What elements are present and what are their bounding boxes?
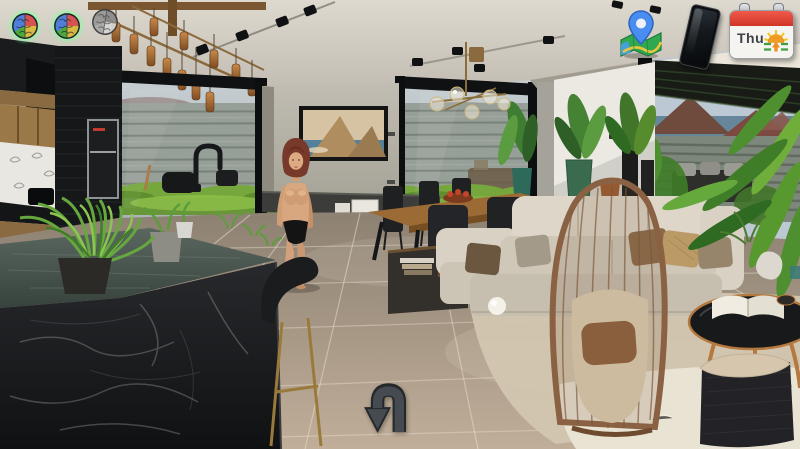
map-pin-icon [617, 8, 665, 60]
game-viewport: Thu [0, 0, 800, 449]
mind-status-icon-2[interactable] [52, 11, 82, 41]
sunrise-weather-icon [763, 28, 789, 54]
kitchen-wall-oven [55, 46, 122, 236]
brain-icon [10, 11, 40, 41]
map-button[interactable] [617, 8, 665, 60]
mind-status-icon-3[interactable] [88, 5, 122, 39]
calendar-header [730, 11, 793, 26]
u-turn-arrow-icon [361, 376, 419, 434]
calendar-day-label: Thu [737, 30, 764, 46]
mind-status-icon-1[interactable] [10, 11, 40, 41]
back-button[interactable] [361, 376, 419, 434]
brain-icon [88, 5, 122, 39]
wall-picture [299, 106, 388, 161]
sphere-lamp [488, 297, 506, 315]
side-pouf [700, 354, 794, 447]
brain-icon [52, 11, 82, 41]
calendar-widget[interactable]: Thu [729, 3, 794, 59]
wing-chair [553, 181, 665, 435]
